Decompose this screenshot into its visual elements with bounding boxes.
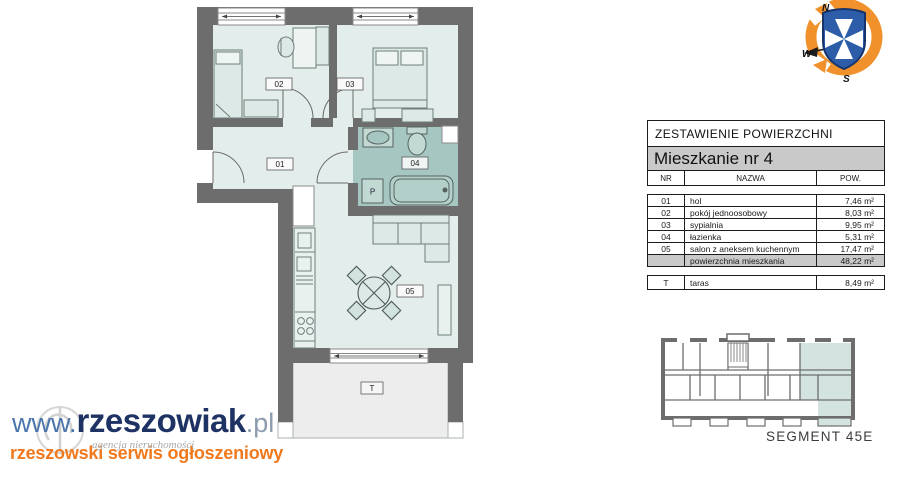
site-logo: www.rzeszowiak.pl agencja nieruchomości … [10, 392, 330, 478]
compass-n: N [822, 3, 830, 14]
rooms-table: 01 hol 7,46 m² 02 pokój jednoosobowy 8,0… [647, 194, 885, 267]
staircase [727, 334, 749, 367]
logo-watermark-script: agencja nieruchomości [92, 439, 194, 451]
table-row: 04 łazienka 5,31 m² [648, 230, 884, 242]
pillow-right [401, 51, 423, 65]
bed-bench [402, 109, 433, 122]
tv-cabinet [438, 285, 451, 335]
logo-wordmark: www.rzeszowiak.pl [12, 402, 274, 440]
dresser [244, 100, 278, 117]
label-05: 05 [397, 285, 423, 297]
duct-shaft [442, 126, 458, 143]
pillow [216, 52, 240, 64]
compass-w: W [802, 49, 813, 60]
entry-door-opening [197, 150, 213, 183]
svg-text:04: 04 [411, 159, 420, 168]
svg-text:03: 03 [346, 80, 355, 89]
terrace-slider-window [330, 349, 428, 363]
logo-www: www. [12, 408, 77, 438]
desk-chair [278, 37, 294, 57]
terrace-row: T taras 8,49 m² [648, 276, 884, 289]
toilet-bowl [408, 133, 426, 155]
kitchen-recess [293, 186, 314, 226]
logo-tld: .pl [246, 408, 275, 438]
compass-s: S [843, 74, 850, 84]
label-01: 01 [267, 158, 293, 170]
compass-rose: N W S [797, 0, 892, 84]
summary-row: powierzchnia mieszkania 48,22 m² [648, 254, 884, 266]
segment-label: SEGMENT 45E [766, 429, 873, 444]
nightstand [362, 109, 375, 122]
compass-swirl-icon [801, 0, 877, 81]
table-header: NR NAZWA POW. [647, 170, 885, 186]
table-title: ZESTAWIENIE POWIERZCHNI [647, 120, 885, 147]
table-row: 01 hol 7,46 m² [648, 195, 884, 206]
label-02: 02 [266, 78, 292, 90]
window-room2 [218, 8, 285, 25]
desk [293, 28, 316, 68]
svg-text:T: T [370, 384, 375, 393]
table-row: 03 sypialnia 9,95 m² [648, 218, 884, 230]
label-03: 03 [337, 78, 363, 90]
col-nr: NR [648, 171, 684, 185]
label-terrace: T [361, 382, 383, 394]
svg-text:05: 05 [406, 287, 415, 296]
terrace-table: T taras 8,49 m² [647, 275, 885, 290]
wardrobe [316, 27, 329, 65]
page: P [0, 0, 900, 481]
table-row: 05 salon z aneksem kuchennym 17,47 m² [648, 242, 884, 254]
washer-label: P [370, 188, 375, 197]
svg-text:02: 02 [275, 80, 284, 89]
col-name: NAZWA [684, 171, 816, 185]
table-row: 02 pokój jednoosobowy 8,03 m² [648, 206, 884, 218]
floor-plan: P [185, 0, 480, 445]
label-04: 04 [402, 157, 428, 169]
area-summary: ZESTAWIENIE POWIERZCHNI Mieszkanie nr 4 … [647, 120, 885, 290]
segment-key-plan [655, 332, 865, 428]
logo-name: rzeszowiak [77, 402, 246, 439]
pillow-left [376, 51, 398, 65]
kitchen [293, 186, 315, 348]
col-area: POW. [816, 171, 884, 185]
svg-text:01: 01 [276, 160, 285, 169]
apartment-title: Mieszkanie nr 4 [647, 146, 885, 171]
window-room3 [353, 8, 418, 25]
